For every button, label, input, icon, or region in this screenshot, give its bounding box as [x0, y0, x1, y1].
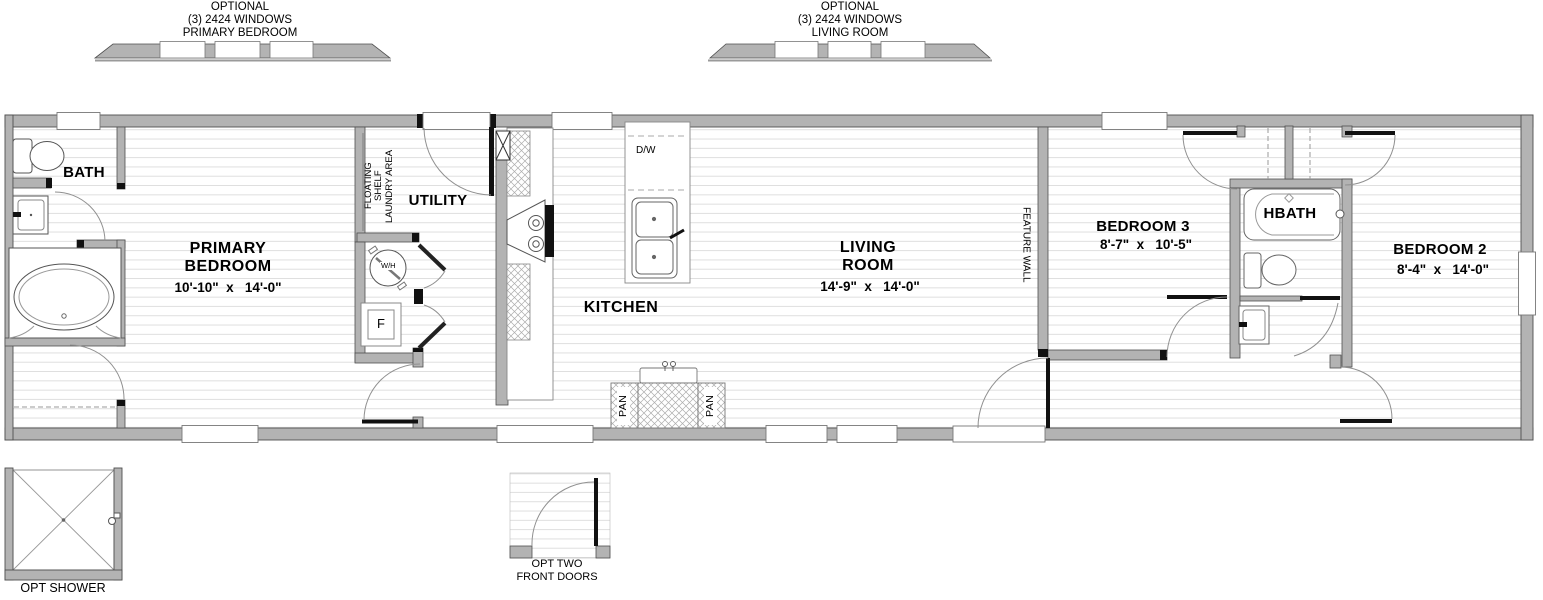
option-window	[160, 42, 205, 59]
label-living-line1: LIVING	[840, 240, 896, 257]
label-furnace: F	[377, 317, 385, 331]
callout-left-line1: OPTIONAL	[211, 1, 269, 13]
label-opt-shower: OPT SHOWER	[20, 582, 105, 595]
floorplan-canvas: OPTIONAL (3) 2424 WINDOWS PRIMARY BEDROO…	[0, 0, 1543, 600]
callout-right-line2: (3) 2424 WINDOWS	[798, 14, 902, 26]
callout-left-line2: (3) 2424 WINDOWS	[188, 14, 292, 26]
hbath-toilet-tank	[1244, 253, 1261, 288]
window-option-right	[708, 42, 992, 62]
label-dishwasher: D/W	[636, 146, 655, 157]
shower-detail	[5, 468, 122, 580]
callout-right-line1: OPTIONAL	[821, 1, 879, 13]
closet2-door-leaf	[1345, 131, 1395, 135]
wall-top	[5, 115, 1533, 127]
bedroom3-door-leaf	[1167, 295, 1227, 299]
label-living-line2: ROOM	[842, 258, 894, 275]
label-bedroom2: BEDROOM 2	[1393, 242, 1487, 258]
label-hbath: HBATH	[1264, 206, 1317, 222]
front-door-detail	[510, 473, 610, 558]
primary-door-leaf	[362, 420, 418, 424]
label-bedroom3: BEDROOM 3	[1096, 219, 1190, 235]
drop-counter	[638, 383, 698, 428]
dims-living: 14'-9" x 14'-0"	[820, 280, 920, 294]
option-window	[775, 42, 818, 59]
detail-door-leaf	[594, 478, 598, 546]
back-door-leaf	[489, 127, 494, 196]
front-door-leaf	[1046, 358, 1050, 428]
callout-left-line3: PRIMARY BEDROOM	[183, 27, 298, 39]
label-water-heater: W/H	[380, 262, 397, 270]
option-window	[215, 42, 260, 59]
window-bedroom3	[1102, 113, 1167, 130]
feature-wall	[1038, 127, 1048, 350]
island-sink	[632, 198, 684, 278]
label-utility: UTILITY	[409, 193, 468, 209]
option-window	[828, 42, 871, 59]
callout-right-line3: LIVING ROOM	[812, 27, 889, 39]
hbath-toilet-bowl	[1262, 255, 1296, 285]
label-primary-line2: BEDROOM	[184, 259, 271, 276]
faucet	[13, 212, 21, 217]
window-primary-bedroom	[182, 426, 258, 443]
toilet-bowl	[30, 142, 64, 171]
kitchen-island	[625, 122, 690, 283]
hbath-faucet	[1239, 322, 1247, 327]
dims-primary: 10'-10" x 14'-0"	[174, 281, 281, 295]
drop-sink	[640, 368, 697, 383]
dims-bedroom3: 8'-7" x 10'-5"	[1100, 238, 1192, 252]
label-kitchen: KITCHEN	[584, 300, 659, 317]
floorplan-drawing	[0, 0, 1543, 600]
closet3-door-leaf	[1183, 131, 1237, 135]
label-primary-line1: PRIMARY	[190, 241, 267, 258]
dims-bedroom2: 8'-4" x 14'-0"	[1397, 263, 1489, 277]
option-window	[881, 42, 925, 59]
bedroom2-door-leaf	[1340, 419, 1392, 423]
shower-door-handle	[109, 518, 116, 525]
tub-faucet	[1336, 210, 1344, 218]
label-opt-front-doors-line1: OPT TWO	[532, 559, 583, 571]
floor	[8, 118, 1530, 437]
label-laundry-area: LAUNDRY AREA	[385, 130, 395, 242]
window-bath	[57, 113, 100, 130]
front-door-opening	[953, 426, 1045, 442]
label-feature-wall: FEATURE WALL	[1020, 190, 1031, 300]
window-living-2	[837, 426, 897, 443]
window-kitchen	[552, 113, 612, 130]
label-opt-front-doors-line2: FRONT DOORS	[516, 572, 597, 584]
label-floating-shelf-line2: SHELF	[374, 138, 384, 234]
label-bath: BATH	[63, 165, 105, 181]
toilet-tank	[13, 139, 32, 173]
label-pantry-left: PAN	[617, 387, 630, 425]
label-pantry-right: PAN	[704, 387, 717, 425]
window-dining	[497, 426, 593, 443]
window-bedroom2	[1519, 252, 1536, 315]
hbath-door-leaf	[1300, 296, 1340, 300]
back-door-opening	[423, 113, 490, 130]
window-option-left	[95, 42, 391, 62]
option-window	[270, 42, 313, 59]
chase-box	[496, 131, 510, 160]
window-living-1	[766, 426, 827, 443]
